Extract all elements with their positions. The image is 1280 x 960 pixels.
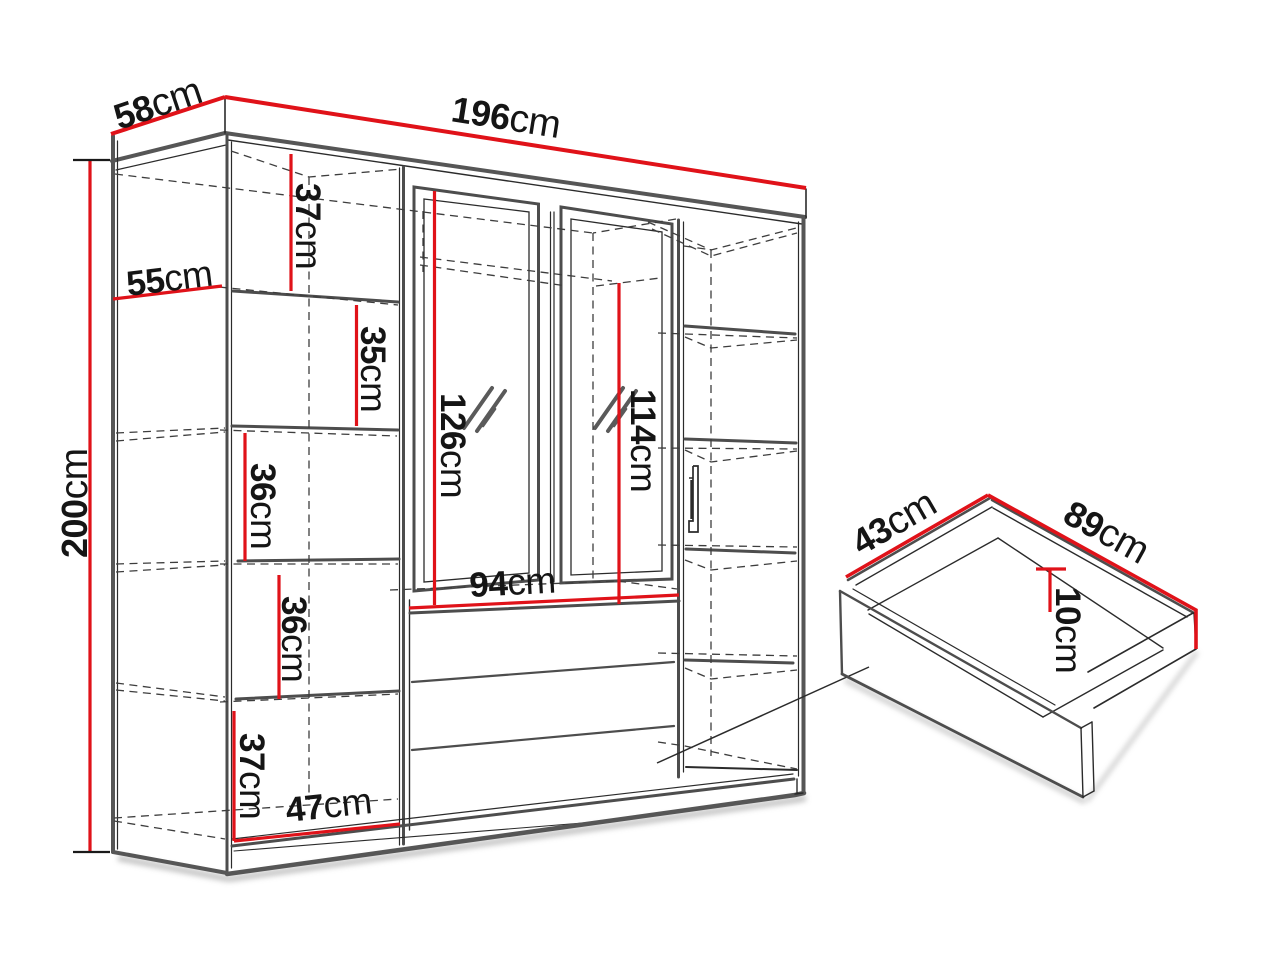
svg-text:37cm: 37cm xyxy=(232,733,273,819)
svg-text:126cm: 126cm xyxy=(433,393,474,498)
svg-text:37cm: 37cm xyxy=(288,183,329,269)
svg-text:35cm: 35cm xyxy=(353,326,394,412)
svg-text:114cm: 114cm xyxy=(623,389,664,492)
svg-text:36cm: 36cm xyxy=(243,463,284,549)
svg-text:36cm: 36cm xyxy=(274,596,315,682)
svg-text:200cm: 200cm xyxy=(53,448,96,558)
svg-text:10cm: 10cm xyxy=(1048,587,1089,673)
svg-text:94cm: 94cm xyxy=(468,560,556,605)
